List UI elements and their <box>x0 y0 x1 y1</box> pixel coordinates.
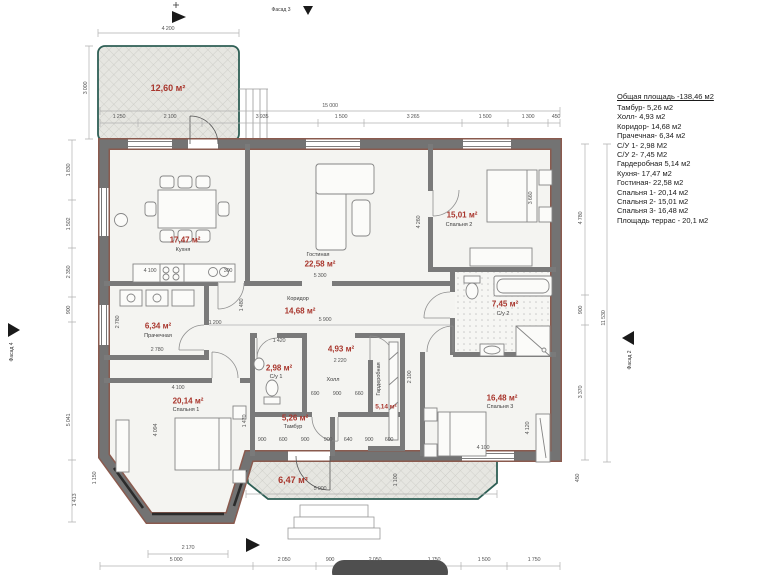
legend-item: Коридор- 14,68 м2 <box>617 122 765 131</box>
legend-item: Тамбур- 5,26 м2 <box>617 103 765 112</box>
floor-plan-drawing <box>0 0 768 575</box>
dim-label: 1 750 <box>428 557 441 563</box>
facade-3-label: Фасад 3 <box>272 7 291 13</box>
dim-label: 3 265 <box>407 114 420 120</box>
facade-2-marker <box>622 331 634 345</box>
dim-label: 1 502 <box>66 218 72 231</box>
dim-label: 2 780 <box>115 316 121 329</box>
dim-label: 4 100 <box>172 385 185 391</box>
room-name-bedroom3: Спальня 3 <box>487 404 514 410</box>
dim-label: 1 250 <box>113 114 126 120</box>
room-name-wardrobe: Гардеробная <box>376 362 382 395</box>
room-area-laundry: 6,34 м² <box>145 322 171 331</box>
dim-label: 900 <box>326 557 335 563</box>
room-area-wc1: 2,98 м² <box>266 364 292 373</box>
window-top-bedroom2 <box>463 140 511 149</box>
room-area-living: 22,58 м² <box>305 260 336 269</box>
dim-label: 4 094 <box>153 424 159 437</box>
legend-item: С/У 2- 7,45 М2 <box>617 150 765 159</box>
dim-label: 3 935 <box>256 114 269 120</box>
dim-label: 1 750 <box>528 557 541 563</box>
window-top-kitchen <box>128 140 172 149</box>
dim-label: 690 <box>311 391 320 397</box>
dim-label: 1 300 <box>522 114 535 120</box>
laundry-machines <box>120 290 194 306</box>
dim-label: 4 260 <box>416 216 422 229</box>
room-name-kitchen: Кухня <box>176 247 191 253</box>
dim-label: 5 300 <box>314 273 327 279</box>
dim-label: 3 660 <box>528 192 534 205</box>
legend-item: Спальня 3- 16,48 м2 <box>617 206 765 215</box>
dim-label: 600 <box>279 437 288 443</box>
terrace-top-shape <box>98 46 239 141</box>
dim-label: 2 100 <box>164 114 177 120</box>
dim-label: 15 000 <box>322 103 338 109</box>
dim-label: 900 <box>324 437 333 443</box>
room-area-bedroom3: 16,48 м² <box>487 394 518 403</box>
window-left-laundry <box>100 305 109 345</box>
dim-label: 3 370 <box>578 386 584 399</box>
dim-label: 2 170 <box>182 545 195 551</box>
dim-label: 5 000 <box>170 557 183 563</box>
room-name-bedroom1: Спальня 1 <box>173 407 200 413</box>
dim-label: 2 350 <box>66 266 72 279</box>
legend-item: Кухня- 17,47 м2 <box>617 169 765 178</box>
dim-label: 4 780 <box>578 212 584 225</box>
dim-label: 1 500 <box>335 114 348 120</box>
facade-1-marker <box>246 538 260 552</box>
dim-label: 1 100 <box>393 474 399 487</box>
dim-label: 2 050 <box>278 557 291 563</box>
room-area-corridor: 14,68 м² <box>285 307 316 316</box>
dim-label: 4 100 <box>144 268 157 274</box>
shower <box>516 326 550 356</box>
room-area-bedroom2: 15,01 м² <box>447 211 478 220</box>
dim-label: 2 220 <box>334 358 347 364</box>
dim-label: 5 900 <box>319 317 332 323</box>
wardrobe-shelves <box>389 342 398 440</box>
room-name-corridor: Коридор <box>287 296 309 302</box>
sink-wc1 <box>254 358 264 370</box>
dim-label: 2 050 <box>369 557 382 563</box>
dim-label: 1 413 <box>72 494 78 507</box>
window-left-kitchen <box>100 188 109 236</box>
entrance-steps <box>288 505 380 539</box>
dim-label: 900 <box>66 306 72 315</box>
dim-label: 5 000 <box>314 486 327 492</box>
dim-label: 900 <box>258 437 267 443</box>
room-name-bedroom2: Спальня 2 <box>446 222 473 228</box>
legend-title: Общая площадь -138,46 м2 <box>617 92 765 101</box>
dim-label: 5 041 <box>66 414 72 427</box>
dim-label: 660 <box>355 391 364 397</box>
dim-label: 11 530 <box>601 310 607 325</box>
dim-label: 900 <box>365 437 374 443</box>
dim-label: 900 <box>333 391 342 397</box>
dim-label: 900 <box>578 306 584 315</box>
area-legend: Общая площадь -138,46 м2 Тамбур- 5,26 м2… <box>617 92 765 225</box>
room-area-terrace-top: 12,60 м² <box>151 83 186 93</box>
legend-item: Спальня 2- 15,01 м2 <box>617 197 765 206</box>
room-name-hall: Холл <box>327 377 340 383</box>
dim-label: 2 100 <box>407 371 413 384</box>
facade-3-marker <box>303 6 313 15</box>
dim-label: 3 000 <box>83 82 89 95</box>
dim-label: 900 <box>301 437 310 443</box>
dim-label: 1 470 <box>242 415 248 428</box>
room-name-living: Гостиная <box>306 252 329 258</box>
legend-item: Спальня 1- 20,14 м2 <box>617 188 765 197</box>
room-name-laundry: Прачечная <box>144 333 172 339</box>
dim-label: 4 100 <box>477 445 490 451</box>
dim-label: 1 420 <box>273 338 286 344</box>
boiler-icon <box>115 214 128 227</box>
legend-item: Прачечная- 6,34 м2 <box>617 131 765 140</box>
facade-4-label: Фасад 4 <box>9 343 15 362</box>
window-top-living <box>306 140 360 149</box>
room-area-wc2: 7,45 м² <box>492 300 518 309</box>
dim-label: 4 200 <box>162 26 175 32</box>
legend-item: Гостиная- 22,58 м2 <box>617 178 765 187</box>
room-area-kitchen: 17,47 м² <box>170 236 201 245</box>
room-name-wc1: С/у 1 <box>270 374 283 380</box>
dim-label: 450 <box>552 114 561 120</box>
dim-label: 1 150 <box>92 472 98 485</box>
sink-wc2 <box>480 344 504 356</box>
legend-item: Холл- 4,93 м2 <box>617 112 765 121</box>
floor-plan-canvas: 17,47 м² Кухня Гостиная 22,58 м² 15,01 м… <box>0 0 768 575</box>
facade-2-label: Фасад 2 <box>627 351 633 370</box>
dim-label: 1 500 <box>479 114 492 120</box>
legend-item: С/У 1- 2,98 М2 <box>617 141 765 150</box>
room-area-terrace-bottom: 6,47 м² <box>278 475 308 485</box>
dim-label: 600 <box>385 437 394 443</box>
legend-item: Площадь террас - 20,1 м2 <box>617 216 765 225</box>
dim-label: 1 500 <box>478 557 491 563</box>
facade-4-marker <box>8 323 20 337</box>
dim-label: 1 830 <box>66 164 72 177</box>
north-arrow-icon <box>172 2 186 23</box>
dim-label: 1 480 <box>239 299 245 312</box>
room-area-wardrobe: 5,14 м² <box>375 404 396 411</box>
dim-label: 300 <box>224 268 233 274</box>
bathtub <box>494 276 552 296</box>
dim-label: 640 <box>344 437 353 443</box>
room-name-wc2: С/у 2 <box>497 311 510 317</box>
dim-label: 2 780 <box>151 347 164 353</box>
room-area-bedroom1: 20,14 м² <box>173 397 204 406</box>
room-name-tambour: Тамбур <box>284 424 303 430</box>
room-area-tambour: 5,26 м² <box>282 414 308 423</box>
legend-item: Гардеробная 5,14 м2 <box>617 159 765 168</box>
dim-label: 1 200 <box>209 320 222 326</box>
dim-label: 4 120 <box>525 422 531 435</box>
dim-label: 450 <box>575 474 581 483</box>
room-area-hall: 4,93 м² <box>328 345 354 354</box>
